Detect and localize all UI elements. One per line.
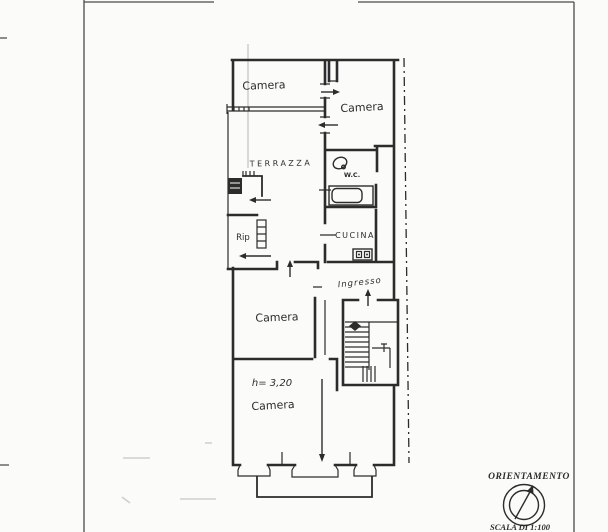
toilet-icon <box>331 155 348 171</box>
scan-artifacts <box>122 44 248 503</box>
room-label-camera-top-left: Camera <box>242 78 286 92</box>
boundary-dashdot-line <box>404 58 409 463</box>
scale-label: SCALA DI 1:100 <box>490 522 551 532</box>
stove-icon <box>353 249 372 260</box>
room-label-terrazza: TERRAZZA <box>249 158 313 168</box>
room-label-ingresso: Ingresso <box>337 276 382 291</box>
room-label-ripostiglio: Rip <box>236 233 250 243</box>
room-label-camera-top-right: Camera <box>340 100 384 115</box>
staircase <box>345 321 397 382</box>
door-arrow-right-icon <box>321 89 340 95</box>
terrace-door-arrow-icon <box>249 197 271 203</box>
room-labels: Camera Camera TERRAZZA W.C. Rip CUCINA I… <box>236 78 384 413</box>
balcony-door-arrow-icon <box>319 379 325 462</box>
closet-door-arrow-icon <box>239 253 271 259</box>
compass-icon <box>504 485 545 526</box>
terrace-shaft-icon <box>228 171 262 196</box>
north-needle <box>515 490 531 519</box>
entrance-arrow-icon <box>365 289 371 306</box>
floor-plan-scan-page: Camera Camera TERRAZZA W.C. Rip CUCINA I… <box>0 0 608 532</box>
door-arrow-left-icon <box>318 122 338 128</box>
terrace-entry-arrow-icon <box>287 260 293 277</box>
room-label-cucina: CUCINA <box>335 231 375 240</box>
room-label-camera-middle: Camera <box>255 310 299 324</box>
floor-plan-svg: Camera Camera TERRAZZA W.C. Rip CUCINA I… <box>0 0 608 532</box>
registration-tick <box>0 38 9 465</box>
window-sills <box>238 465 376 477</box>
ceiling-height-note: h= 3,20 <box>252 378 292 389</box>
orientation-title: ORIENTAMENTO <box>488 472 570 482</box>
room-label-camera-bottom: Camera <box>251 398 295 413</box>
balcony <box>257 477 372 497</box>
room-label-wc: W.C. <box>344 171 360 179</box>
legend: ORIENTAMENTO SCALA DI 1:100 <box>488 472 570 532</box>
scan-frame <box>0 0 574 532</box>
bathtub-icon <box>329 186 373 205</box>
closet-folding-door <box>257 220 266 248</box>
